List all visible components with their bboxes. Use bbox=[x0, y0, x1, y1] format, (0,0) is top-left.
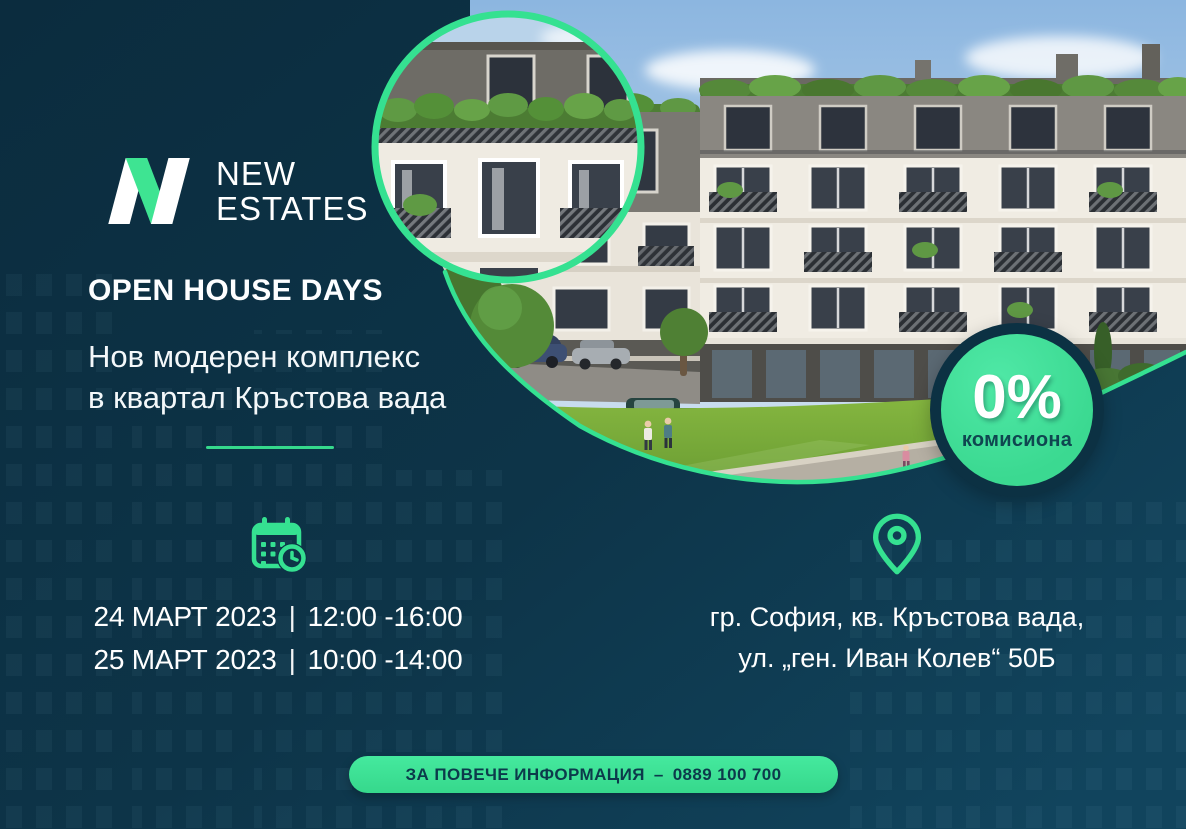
calendar-clock-icon bbox=[247, 512, 311, 576]
event-subtitle: Нов модерен комплекс в квартал Кръстова … bbox=[88, 336, 446, 418]
schedule-time: 10:00 -14:00 bbox=[308, 644, 463, 675]
cta-phone: 0889 100 700 bbox=[673, 765, 782, 785]
badge-value: 0% bbox=[972, 369, 1062, 427]
logo-wordmark: NEW ESTATES bbox=[216, 156, 368, 226]
schedule-date: 25 МАРТ 2023 bbox=[93, 644, 276, 675]
cta-label: ЗА ПОВЕЧЕ ИНФОРМАЦИЯ bbox=[405, 765, 644, 785]
event-address: гр. София, кв. Кръстова вада, ул. „ген. … bbox=[650, 597, 1144, 679]
logo-word-new: NEW bbox=[216, 156, 368, 191]
address-line2: ул. „ген. Иван Колев“ 50Б bbox=[650, 638, 1144, 679]
logo: NEW ESTATES bbox=[100, 156, 368, 226]
cta-separator: – bbox=[654, 765, 664, 785]
subtitle-line2: в квартал Кръстова вада bbox=[88, 377, 446, 418]
more-info-phone-button[interactable]: ЗА ПОВЕЧЕ ИНФОРМАЦИЯ – 0889 100 700 bbox=[349, 756, 838, 793]
schedule-date: 24 МАРТ 2023 bbox=[93, 601, 276, 632]
promo-banner: NEW ESTATES OPEN HOUSE DAYS Нов модерен … bbox=[0, 0, 1186, 829]
n-monogram-icon bbox=[100, 158, 200, 224]
event-title: OPEN HOUSE DAYS bbox=[88, 274, 383, 308]
schedule-time: 12:00 -16:00 bbox=[308, 601, 463, 632]
address-line1: гр. София, кв. Кръстова вада, bbox=[650, 597, 1144, 638]
subtitle-line1: Нов модерен комплекс bbox=[88, 336, 446, 377]
event-schedule: 24 МАРТ 2023|12:00 -16:00 25 МАРТ 2023|1… bbox=[48, 595, 508, 681]
schedule-separator: | bbox=[289, 595, 296, 638]
schedule-separator: | bbox=[289, 638, 296, 681]
badge-label: комисиона bbox=[962, 429, 1072, 452]
commission-badge-circle: 0% комисиона bbox=[941, 334, 1093, 486]
map-pin-icon bbox=[871, 512, 923, 576]
commission-badge: 0% комисиона bbox=[930, 323, 1104, 497]
schedule-row: 24 МАРТ 2023|12:00 -16:00 bbox=[48, 595, 508, 638]
accent-divider bbox=[206, 446, 334, 449]
logo-word-estates: ESTATES bbox=[216, 191, 368, 226]
building-main-facade bbox=[699, 44, 1186, 402]
schedule-row: 25 МАРТ 2023|10:00 -14:00 bbox=[48, 638, 508, 681]
